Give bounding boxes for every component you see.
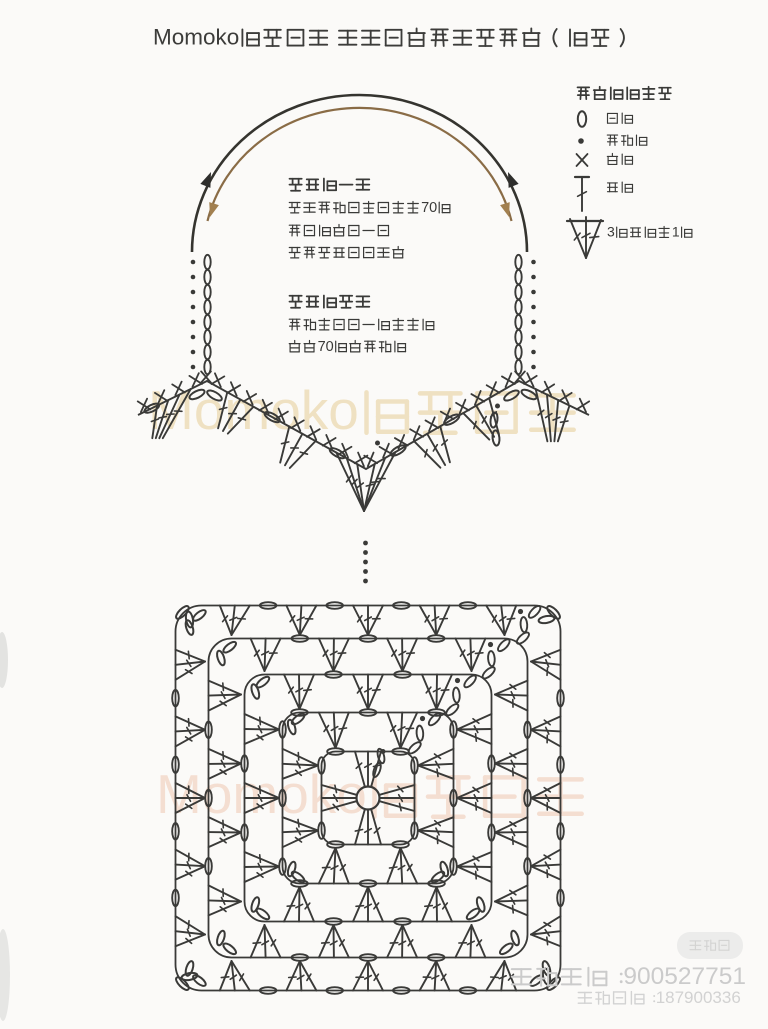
svg-text:3: 3 (607, 224, 615, 240)
svg-text:Momoko: Momoko (156, 763, 367, 825)
svg-text:70: 70 (318, 339, 334, 355)
svg-text:900527751: 900527751 (623, 963, 746, 990)
svg-text:Momoko: Momoko (153, 25, 239, 50)
svg-text:70: 70 (421, 200, 437, 216)
svg-text:187900336: 187900336 (656, 988, 741, 1007)
svg-text:1: 1 (672, 224, 680, 240)
